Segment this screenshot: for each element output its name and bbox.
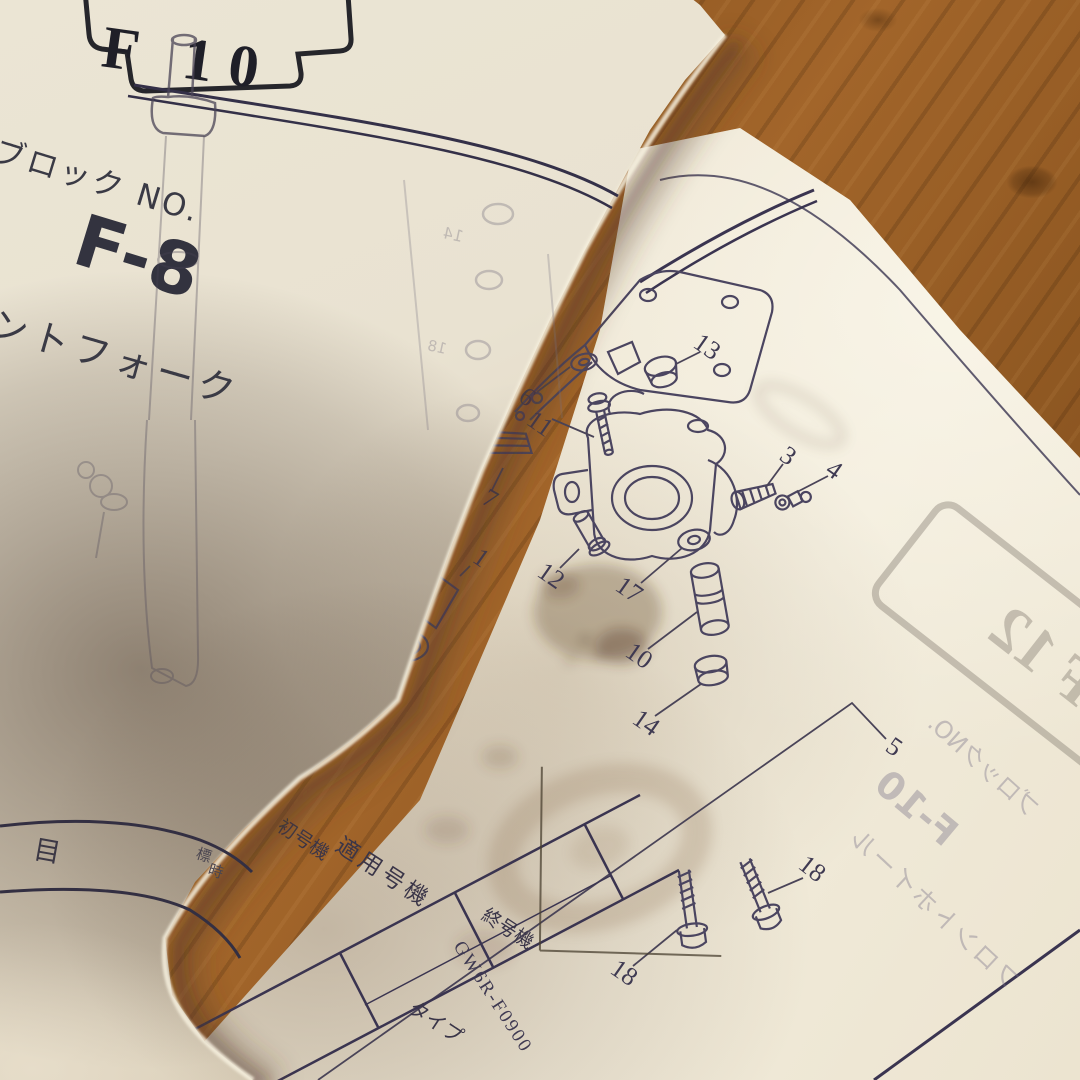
table-item-header: 目 — [31, 834, 63, 869]
headings: ブロック NO. F-8 ントフォーク — [0, 133, 245, 415]
ghost-label-18: 18 — [426, 336, 448, 358]
turning-page-ink: F 10 ブロック NO. F-8 ントフォーク — [0, 0, 1080, 1080]
turning-page-table-band: 目 標 時 — [0, 821, 252, 958]
page-curl-edge-highlight — [164, 35, 725, 1080]
ghost-label-14: 14 — [441, 223, 465, 246]
index-tab-label: F 10 — [98, 14, 279, 103]
section-title: ントフォーク — [0, 302, 245, 414]
photo-of-parts-manual: 13 6 11 7 1 12 17 3 4 10 14 5 18 18 初号機 … — [0, 0, 1080, 1080]
index-tab: F 10 — [84, 0, 351, 103]
turning-page-showthrough: 14 18 — [404, 180, 562, 430]
